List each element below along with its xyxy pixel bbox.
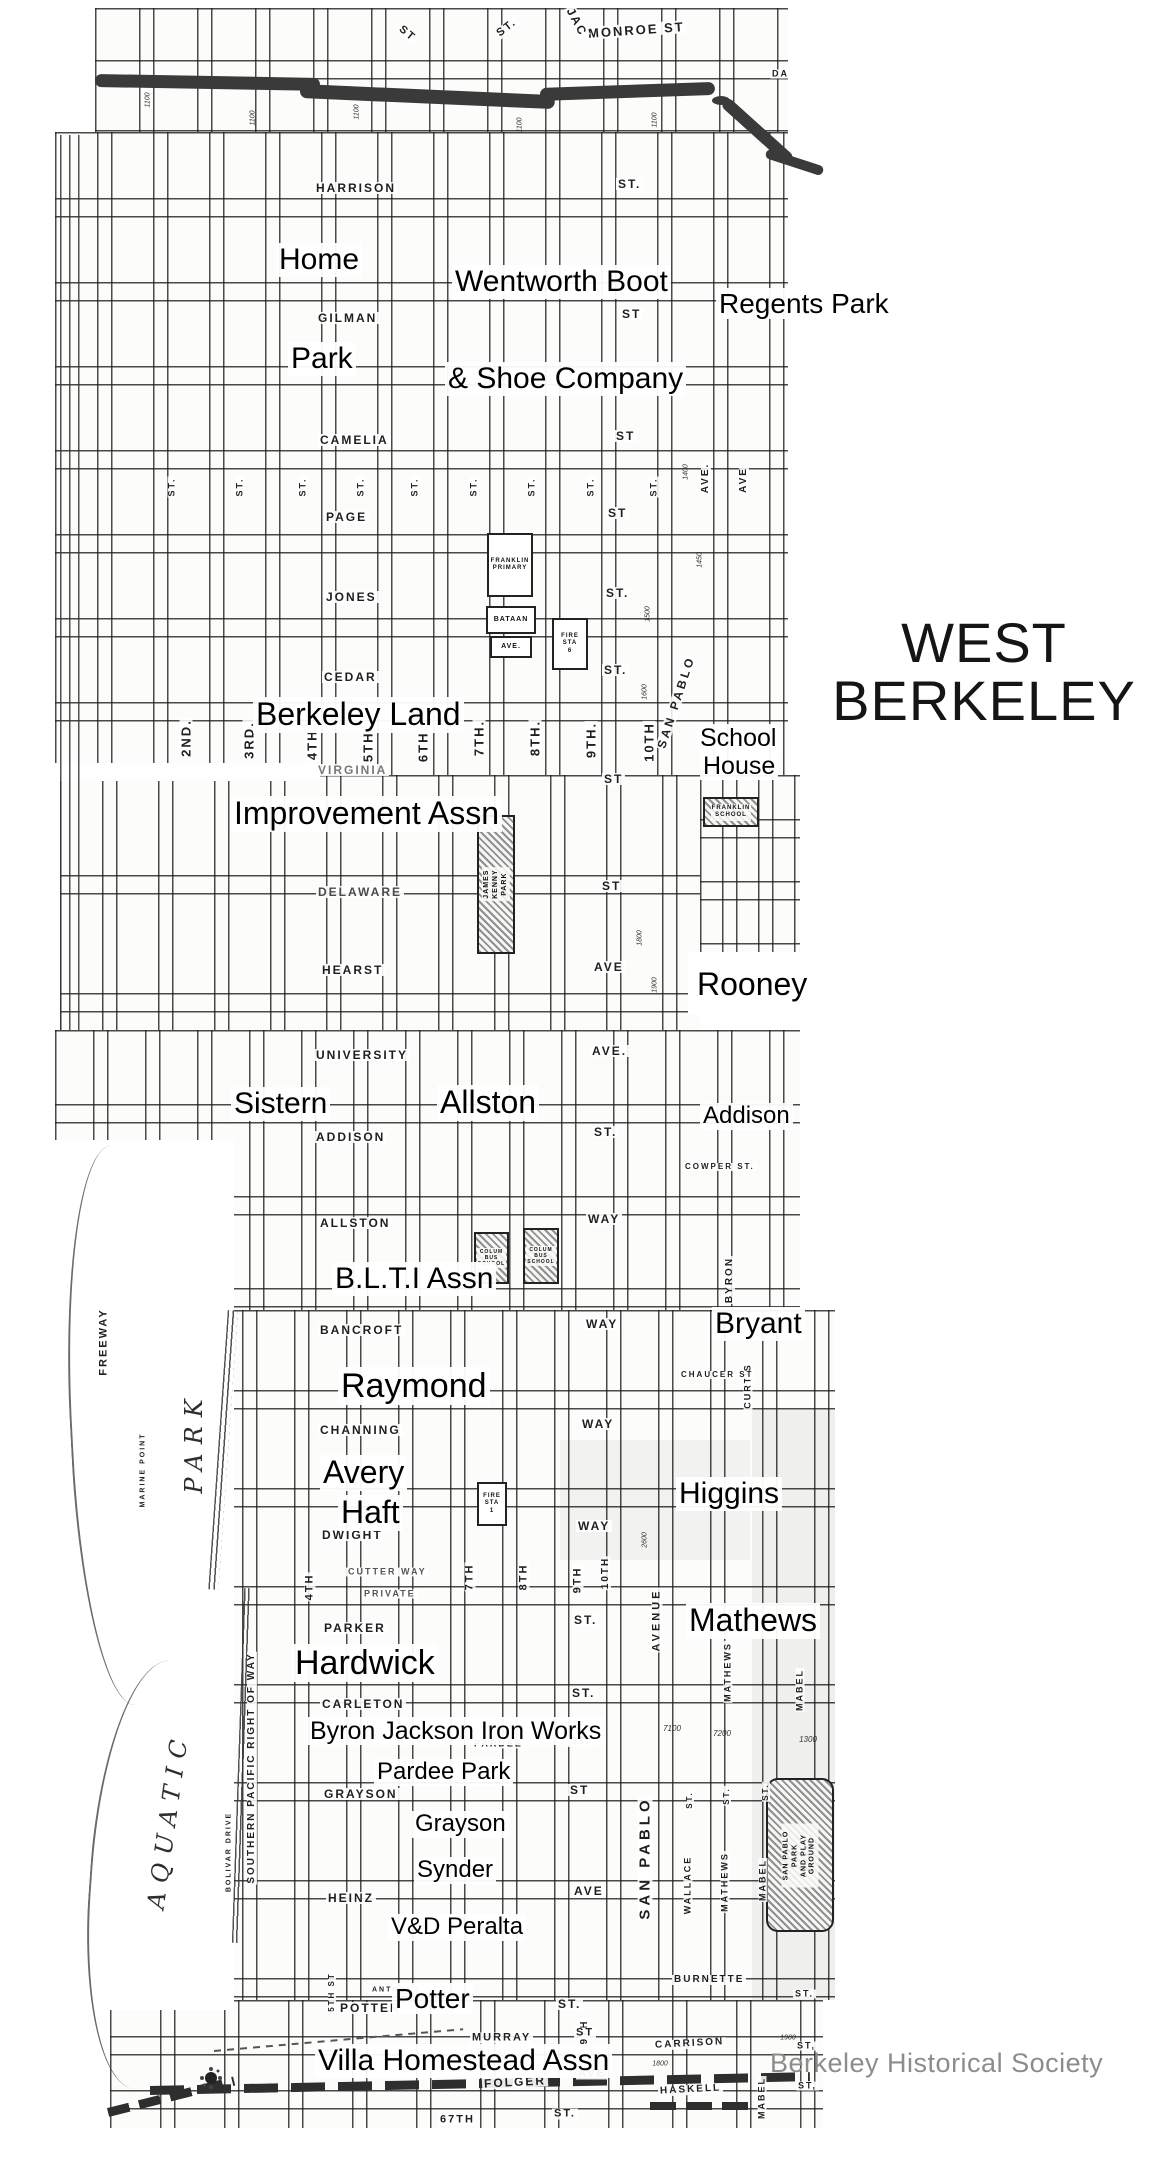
street-label-avenue-v30: AVENUE [652,1587,663,1652]
block-number-10: 1900 [652,977,659,993]
street-label-way-30: WAY [584,1318,620,1330]
street-label-delaware-19: DELAWARE [316,886,404,898]
street-label-mabel-v32: MABEL [796,1668,805,1712]
street-label-hearst-21: HEARST [320,964,385,976]
street-label-page-11: PAGE [324,511,369,523]
street-label-st-49: ST. [556,1998,583,2010]
street-label-harrison-5: HARRISON [314,182,398,194]
street-label-da-4: DA [770,70,791,79]
annotation-byron-jackson-iron-works: Byron Jackson Iron Works [307,1717,604,1745]
block-number-17: 1900 [780,2035,796,2042]
fire-station-1: FIRE STA 1 [477,1482,507,1526]
street-label-st-58: ST. [793,1990,816,1999]
street-label-mathews-v31: MATHEWS [724,1641,733,1703]
street-label-8th-v6: 8TH. [529,719,542,757]
annotation-park: Park [288,342,356,376]
street-label-cowper-st-64: COWPER ST. [683,1163,757,1171]
street-label-9th-v24: 9TH [573,1566,584,1595]
franklin-primary: FRANKLIN PRIMARY [487,533,533,597]
street-label-8th-v23: 8TH [519,1563,530,1592]
annotation-grayson: Grayson [412,1811,509,1838]
street-label-4th-v21: 4TH [305,1573,316,1602]
san-pablo-park: SAN PABLO PARK AND PLAY GROUND [766,1778,834,1932]
map-title-line1: WEST [812,614,1156,672]
annotation-school: School [697,724,779,752]
annotation-b-l-t-i-assn: B.L.T.I Assn [332,1262,496,1296]
fire-station-1-label: FIRE STA 1 [483,1493,501,1516]
block-number-3: 1100 [517,117,524,132]
annotation-regents-park: Regents Park [716,288,892,319]
street-label-st-v14: ST. [411,476,420,497]
annotation-villa-homestead-assn: Villa Homestead Assn [315,2044,612,2078]
street-label-jones-13: JONES [324,591,379,603]
street-label-park-v43: PARK [182,1389,206,1494]
ave-block-label: AVE. [501,643,521,652]
street-label-st-v38: ST. [723,1786,731,1806]
annotation-higgins: Higgins [676,1477,782,1511]
street-label-channing-31: CHANNING [318,1424,403,1436]
street-label-cedar-15: CEDAR [322,671,379,683]
credit-text: Berkeley Historical Society [770,2048,1103,2079]
street-label-st-v17: ST. [587,476,596,497]
street-label-st-40: ST. [570,1687,597,1699]
street-label-7th-v22: 7TH [465,1563,476,1592]
street-label-freeway-v42: FREEWAY [99,1307,110,1376]
street-label-10th-v25: 10TH [601,1556,611,1590]
street-label-cutter-way-35: CUTTER WAY [346,1568,429,1577]
street-label-st-v37: ST. [686,1790,694,1810]
street-label-marine-point-v45: MARINE POINT [140,1432,147,1509]
street-label-allston-27: ALLSTON [318,1217,392,1229]
annotation-v-d-peralta: V&D Peralta [388,1914,526,1941]
annotation-berkeley-land: Berkeley Land [253,697,464,733]
annotation-sistern: Sistern [231,1087,330,1121]
street-label-ave-24: AVE. [590,1045,629,1057]
franklin-school-label: FRANKLIN SCHOOL [711,804,752,821]
street-label-st-12: ST [606,507,629,519]
street-label-carleton-39: CARLETON [320,1698,406,1710]
james-kenny-park: JAMES KENNY PARK [477,815,515,954]
street-label-st-51: ST [574,2028,596,2039]
street-label-murray-50: MURRAY [470,2033,533,2044]
street-label-st-26: ST. [592,1126,619,1138]
street-label-st-v13: ST. [357,476,366,497]
columbus-school-2-label: COLUM BUS SCHOOL [526,1246,555,1267]
street-label-st-10: ST [614,430,637,442]
street-label-mabel-v36: MABEL [759,1858,768,1902]
block-number-0: 1100 [145,92,152,107]
map-title-line2: BERKELEY [812,672,1156,730]
street-label-ave-v19: AVE. [701,462,711,495]
street-label-st-20: ST [600,880,623,892]
street-label-st-38: ST. [572,1614,599,1626]
street-label-5th-st-v26: 5TH ST [328,1971,336,2013]
street-label-ave-v20: AVE [739,466,749,494]
street-label-bolivar-drive-v46: BOLIVAR DRIVE [226,1811,233,1893]
street-label-10th-v8: 10TH [643,721,656,763]
block-number-1: 1100 [250,110,257,125]
street-label-burnette-57: BURNETTE [672,1975,746,1985]
street-label-st-v39: ST. [762,1782,770,1802]
annotation-wentworth-boot: Wentworth Boot [452,265,671,299]
map-title: WEST BERKELEY [812,614,1156,730]
street-label-st-v15: ST. [470,476,479,497]
annotation-raymond: Raymond [338,1367,490,1405]
street-label-mathews-v35: MATHEWS [721,1851,730,1913]
street-label-mabel-v40: MABEL [758,2076,767,2120]
street-label-virginia-17: VIRGINIA [316,764,389,776]
street-label-2nd-v0: 2ND. [180,718,193,758]
block-number-6: 1450 [697,552,704,568]
street-label-st-8: ST [620,308,643,320]
street-label-parker-37: PARKER [322,1622,388,1634]
annotation-potter: Potter [392,1983,473,2014]
street-label-ave-46: AVE [572,1885,606,1897]
annotation-shoe-company: & Shoe Company [445,362,686,396]
annotation-avery: Avery [320,1455,407,1491]
street-label-st-18: ST [602,773,625,785]
fire-station-6-label: FIRE STA 6 [561,633,579,656]
railroad-dot [712,96,730,105]
street-label-byron-v28: BYRON [725,1256,735,1304]
bataan-block-label: BATAAN [494,616,529,625]
street-label-67th-55: 67TH [438,2115,477,2126]
street-label-st-v10: ST. [168,476,177,497]
street-label-gilman-7: GILMAN [316,312,379,324]
annotation-allston: Allston [437,1085,539,1121]
block-number-14: 1300 [799,1736,817,1744]
franklin-school: FRANKLIN SCHOOL [703,797,759,827]
street-label-way-28: WAY [586,1213,622,1225]
street-label-grayson-43: GRAYSON [322,1788,400,1800]
annotation-home: Home [276,243,362,277]
street-label-chaucer-st-63: CHAUCER ST [679,1371,755,1379]
columbus-school-2: COLUM BUS SCHOOL [523,1228,559,1284]
street-label-7th-v5: 7TH. [473,719,486,757]
street-label-st-v12: ST. [299,476,308,497]
street-label-addison-25: ADDISON [314,1131,387,1143]
block-number-12: 7100 [663,1725,681,1733]
white-region-1 [55,763,320,781]
track-lines-0 [60,135,85,1030]
fire-station-6: FIRE STA 6 [552,618,588,670]
annotation-addison: Addison [700,1103,793,1130]
street-label-st-6: ST. [616,178,643,190]
block-number-13: 7200 [713,1730,731,1738]
street-label-st-16: ST. [602,664,629,676]
franklin-primary-label: FRANKLIN PRIMARY [491,558,530,573]
block-number-5: 1400 [683,464,690,480]
annotation-house: House [700,752,778,780]
street-label-st-v18: ST. [650,476,659,497]
annotation-improvement-assn: Improvement Assn [231,796,502,832]
ave-block: AVE. [490,636,532,658]
street-label-way-32: WAY [580,1418,616,1430]
block-number-7: 1500 [645,606,652,622]
street-label-ave-22: AVE [592,961,626,973]
annotation-mathews: Mathews [686,1603,820,1639]
dashed-line-2 [650,2102,750,2110]
street-label-9th-v7: 9TH. [585,721,598,759]
street-label-wallace-v34: WALLACE [684,1855,693,1916]
block-number-4: 1100 [652,112,659,127]
james-kenny-park-label: JAMES KENNY PARK [482,868,510,902]
annotation-haft: Haft [338,1495,403,1531]
street-label-way-34: WAY [576,1520,612,1532]
bataan-block: BATAAN [486,606,536,634]
street-label-bancroft-29: BANCROFT [318,1324,405,1336]
historic-map: JAMES KENNY PARKFRANKLIN SCHOOLFRANKLIN … [0,0,1168,2160]
street-label-southern-pacific-right-of-way-v41: SOUTHERN PACIFIC RIGHT OF WAY [247,1651,257,1884]
street-label-st-v16: ST. [528,476,537,497]
annotation-synder: Synder [414,1857,496,1884]
annotation-pardee-park: Pardee Park [374,1759,513,1786]
street-label-camelia-9: CAMELIA [318,434,391,446]
street-label-heinz-45: HEINZ [326,1892,376,1904]
poi-sun-symbol [205,2072,217,2084]
street-label-st-44: ST [568,1784,591,1796]
block-number-2: 1100 [354,104,361,119]
street-label-st-62: ST, [796,2082,819,2091]
block-number-11: 2600 [642,1532,649,1548]
street-label-university-23: UNIVERSITY [314,1049,410,1061]
block-number-16: 1800 [652,2061,668,2068]
street-label-private-36: PRIVATE [362,1590,418,1599]
san-pablo-park-label: SAN PABLO PARK AND PLAY GROUND [782,1823,819,1887]
street-label-st-v11: ST. [236,476,245,497]
street-label-st-56: ST. [552,2109,578,2120]
annotation-hardwick: Hardwick [292,1644,438,1682]
street-label-st-14: ST. [604,587,631,599]
block-number-9: 1800 [637,930,644,946]
annotation-rooney: Rooney [694,967,810,1003]
street-label-san-pablo-v33: SAN PABLO [638,1795,653,1920]
block-number-8: 1600 [642,684,649,700]
annotation-bryant: Bryant [712,1307,805,1341]
